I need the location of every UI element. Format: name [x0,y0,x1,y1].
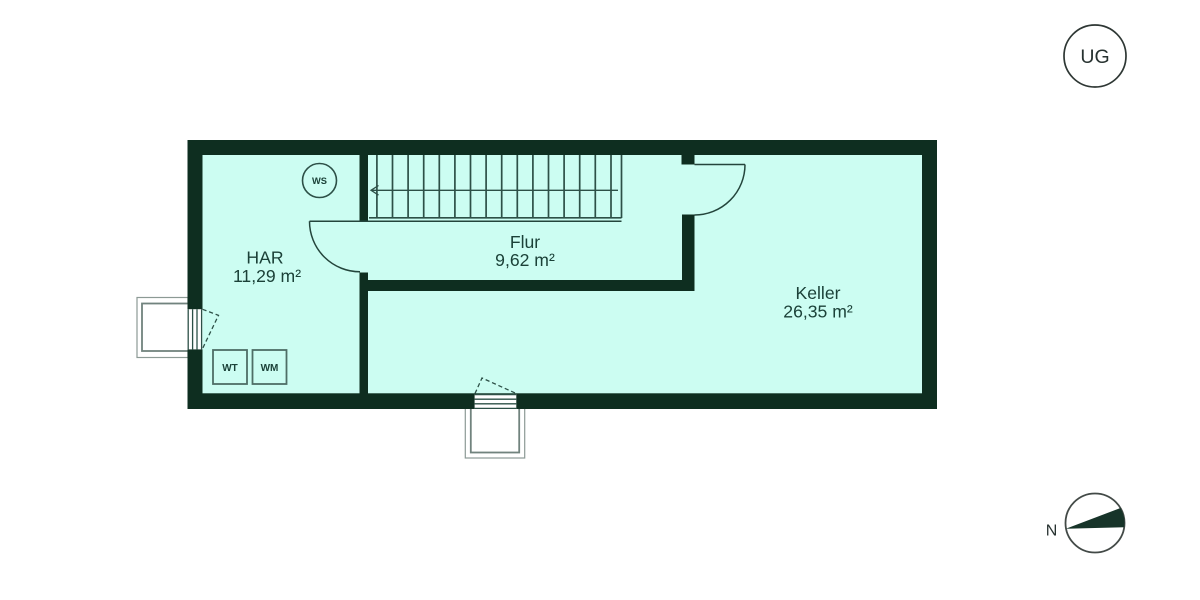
svg-text:WT: WT [222,363,238,374]
svg-text:N: N [1046,523,1058,540]
svg-text:WS: WS [312,176,327,186]
svg-text:11,29 m²: 11,29 m² [233,266,301,286]
svg-text:26,35 m²: 26,35 m² [783,302,853,322]
svg-text:HAR: HAR [246,248,283,268]
svg-text:WM: WM [261,363,279,374]
svg-text:Flur: Flur [510,232,540,252]
svg-text:9,62 m²: 9,62 m² [495,250,555,270]
svg-text:Keller: Keller [796,283,841,303]
svg-text:UG: UG [1080,46,1109,68]
